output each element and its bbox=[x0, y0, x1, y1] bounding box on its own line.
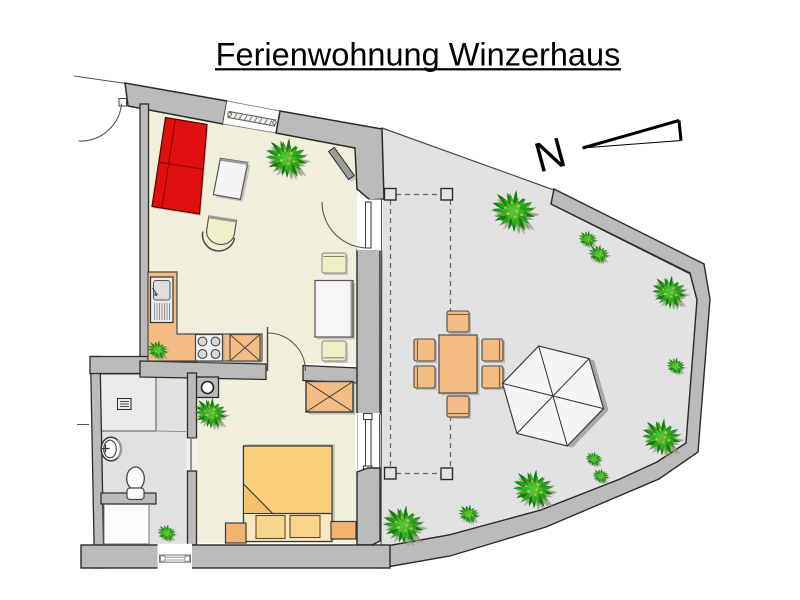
svg-text:Ferienwohnung Winzerhaus: Ferienwohnung Winzerhaus bbox=[216, 37, 621, 73]
